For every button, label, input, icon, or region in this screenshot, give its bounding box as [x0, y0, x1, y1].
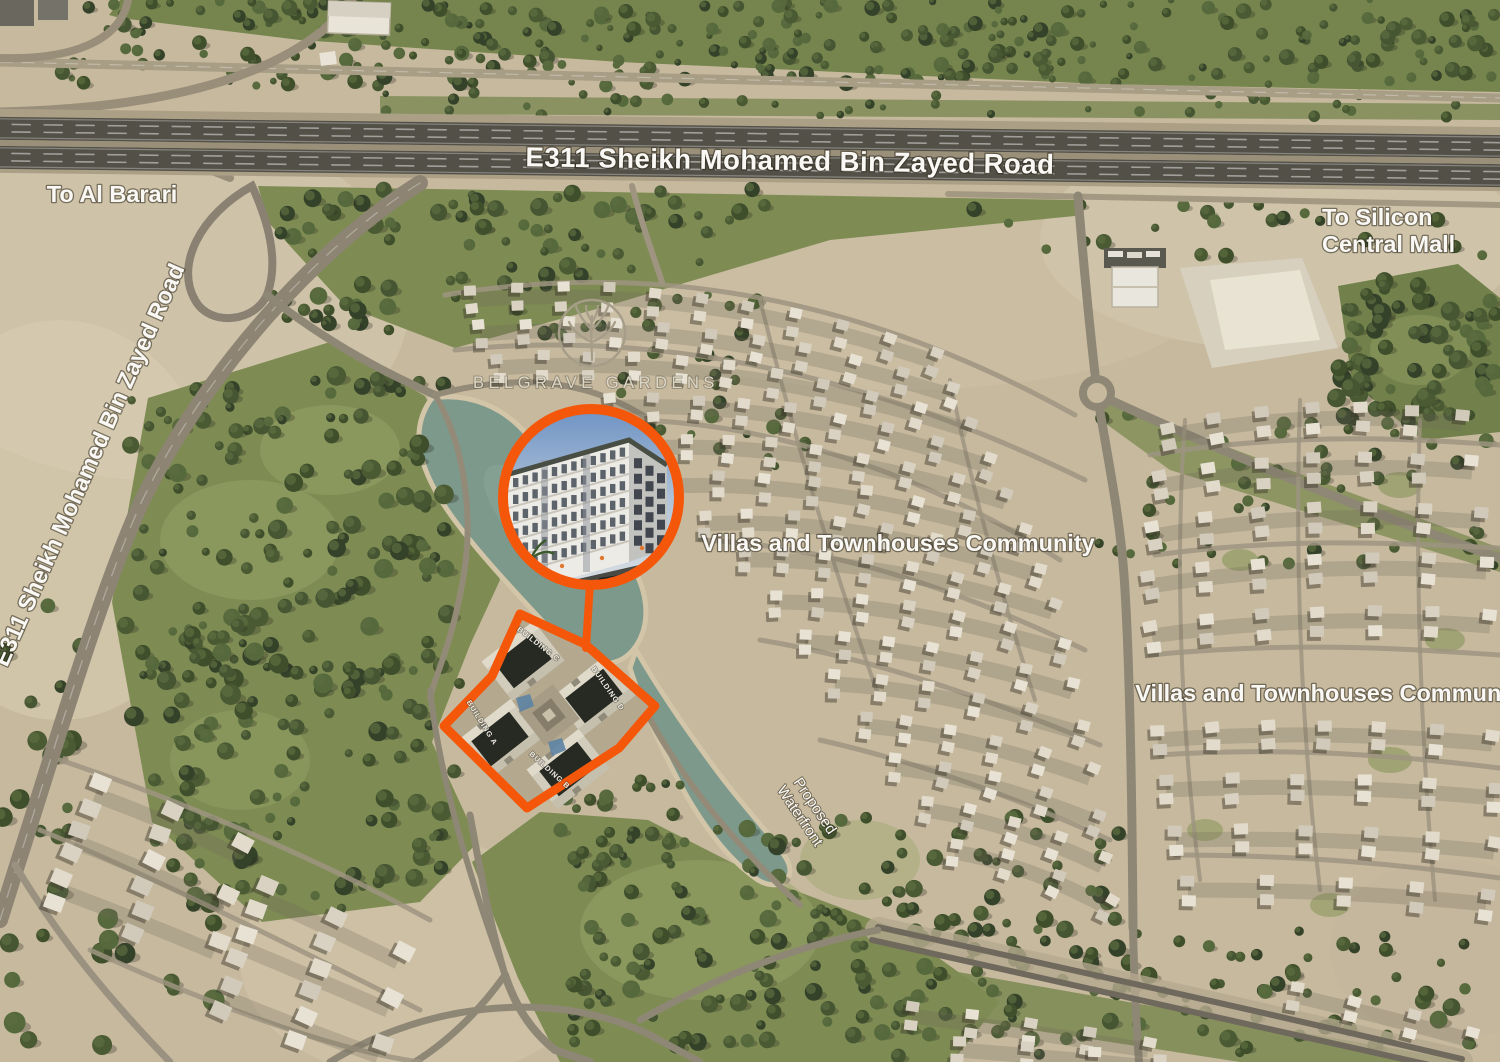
direction-label-al-barari: To Al Barari [47, 181, 178, 207]
location-map: E311 Sheikh Mohamed Bin Zayed Road To Al… [0, 0, 1500, 1062]
area-label-villas-right: Villas and Townhouses Community [1135, 680, 1500, 706]
brand-name: BELGRAVE GARDENS [473, 374, 719, 392]
direction-label-silicon-line2: Central Mall [1322, 231, 1455, 257]
callout-connector-line [586, 583, 590, 648]
direction-label-silicon-line1: To Silicon [1322, 204, 1433, 230]
map-canvas: E311 Sheikh Mohamed Bin Zayed Road To Al… [0, 0, 1500, 1062]
area-label-villas-center: Villas and Townhouses Community [701, 530, 1094, 556]
